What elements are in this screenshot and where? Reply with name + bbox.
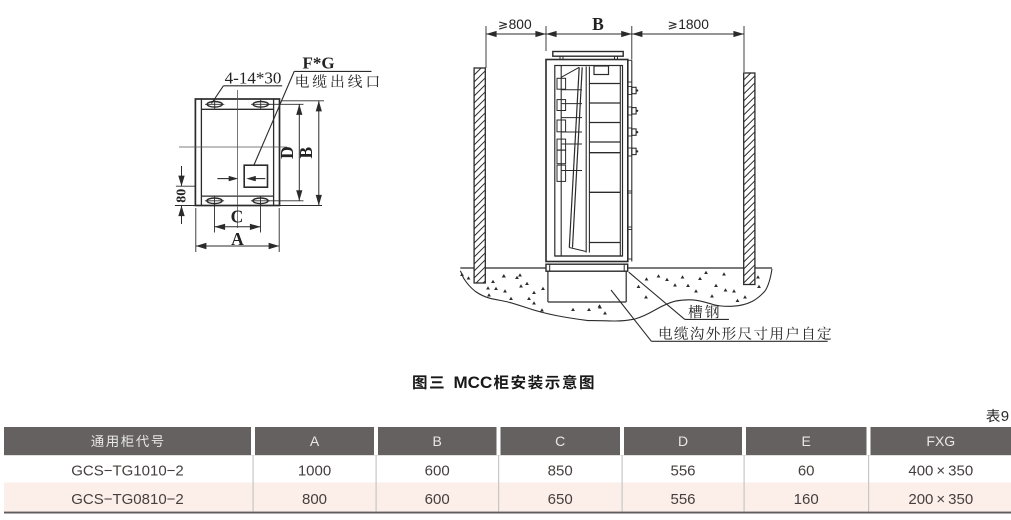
svg-text:A: A — [310, 433, 320, 449]
svg-text:650: 650 — [548, 491, 573, 508]
svg-text:B: B — [296, 146, 316, 158]
svg-text:B: B — [433, 433, 442, 449]
svg-text:C: C — [231, 207, 244, 227]
svg-text:850: 850 — [548, 463, 573, 480]
svg-text:800: 800 — [302, 491, 327, 508]
svg-text:600: 600 — [425, 491, 450, 508]
svg-text:160: 160 — [794, 491, 819, 508]
svg-text:800: 800 — [509, 17, 532, 32]
svg-text:9: 9 — [1001, 408, 1009, 425]
svg-text:C: C — [555, 433, 565, 449]
svg-text:556: 556 — [670, 463, 695, 480]
svg-text:4-14*30: 4-14*30 — [225, 69, 282, 88]
svg-text:D: D — [277, 146, 297, 159]
svg-text:GCS−TG0810−2: GCS−TG0810−2 — [71, 491, 184, 508]
svg-text:200 × 350: 200 × 350 — [908, 491, 973, 508]
svg-text:D: D — [678, 433, 688, 449]
svg-text:GCS−TG1010−2: GCS−TG1010−2 — [71, 463, 184, 480]
svg-text:1000: 1000 — [298, 463, 331, 480]
svg-text:FXG: FXG — [926, 433, 955, 449]
svg-text:556: 556 — [670, 491, 695, 508]
svg-text:B: B — [592, 14, 604, 34]
svg-text:600: 600 — [425, 463, 450, 480]
svg-text:F*G: F*G — [302, 54, 334, 73]
svg-text:400 × 350: 400 × 350 — [908, 463, 973, 480]
svg-text:MCC: MCC — [454, 373, 493, 392]
svg-text:A: A — [231, 229, 244, 249]
svg-text:60: 60 — [798, 463, 815, 480]
svg-text:E: E — [802, 433, 811, 449]
svg-text:80: 80 — [175, 189, 190, 203]
svg-text:1800: 1800 — [678, 17, 709, 32]
